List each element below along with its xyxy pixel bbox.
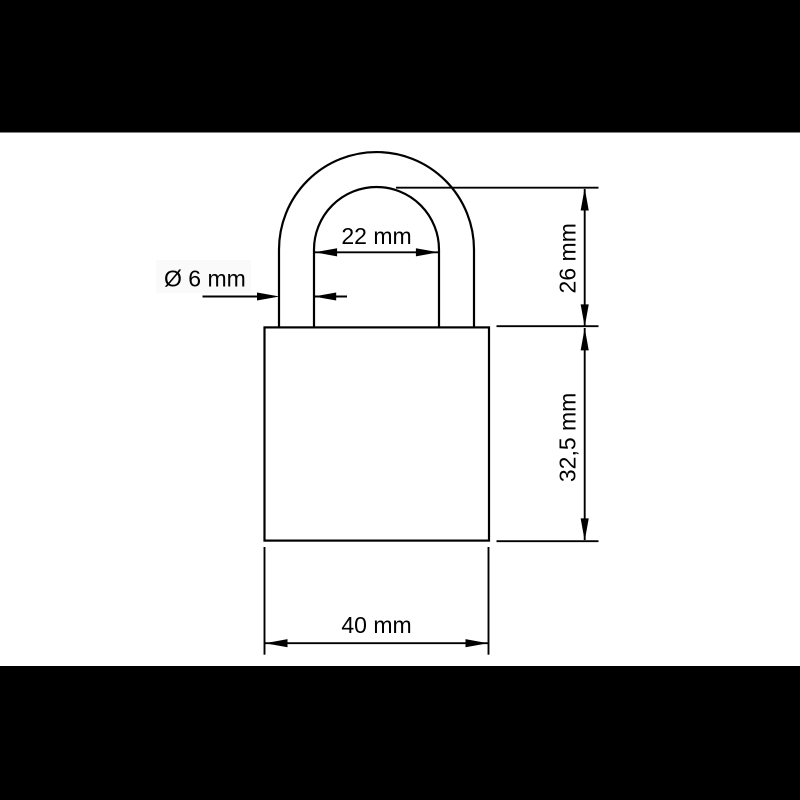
- svg-text:32,5 mm: 32,5 mm: [554, 393, 580, 482]
- svg-text:40 mm: 40 mm: [341, 612, 411, 638]
- svg-text:Ø 6 mm: Ø 6 mm: [164, 266, 246, 292]
- svg-text:22 mm: 22 mm: [341, 223, 411, 249]
- svg-text:26 mm: 26 mm: [554, 223, 580, 293]
